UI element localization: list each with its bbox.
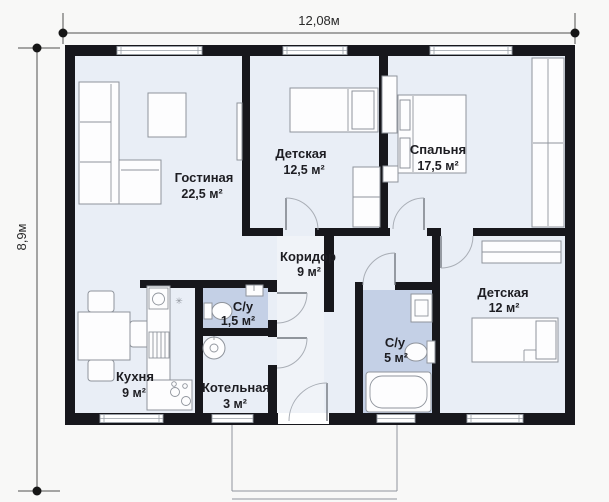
sink <box>246 285 263 296</box>
dimension-marker <box>59 29 68 38</box>
room-area-bath-big: 5 м² <box>384 351 408 365</box>
window-kitchen <box>100 415 163 423</box>
room-label-bath-small: С/у <box>233 299 254 314</box>
window-kids2 <box>467 415 523 423</box>
dimension-marker <box>33 487 42 496</box>
wardrobe-left <box>382 76 397 133</box>
toilet-tank <box>427 341 435 363</box>
dimension-marker <box>571 29 580 38</box>
room-label-corridor: Коридор <box>280 249 336 264</box>
wall-corridor-c <box>427 228 441 236</box>
room-area-boiler: 3 м² <box>223 397 247 411</box>
sofa <box>79 82 119 204</box>
room-label-living: Гостиная <box>175 170 234 185</box>
wall-corridor-d <box>473 228 565 236</box>
window-boiler <box>212 415 253 423</box>
room-area-corridor: 9 м² <box>297 265 321 279</box>
pillow <box>352 91 374 129</box>
window-bath-big <box>377 415 415 423</box>
pillow <box>536 321 556 359</box>
floor-plan: ✳ <box>0 0 609 502</box>
wall-corridor-a <box>242 228 283 236</box>
window-bedroom <box>430 47 512 55</box>
room-label-boiler: Котельная <box>202 380 270 395</box>
nightstand <box>383 166 398 182</box>
room-area-bedroom: 17,5 м² <box>417 159 458 173</box>
room-label-kids2: Детская <box>477 285 528 300</box>
wall-living-kids1 <box>242 56 250 236</box>
vent-symbol: ✳ <box>175 296 183 306</box>
tv-unit <box>237 103 242 160</box>
wall-bath-small-bottom <box>195 328 277 336</box>
room-area-kids2: 12 м² <box>489 301 520 315</box>
wall-hall-left-a <box>268 280 277 292</box>
room-label-kids1: Детская <box>275 146 326 161</box>
dimension-height-label: 8,9м <box>14 223 29 250</box>
room-area-bath-small: 1,5 м² <box>221 314 255 328</box>
room-label-kitchen: Кухня <box>116 369 154 384</box>
wall-bath-big-top <box>395 282 432 290</box>
room-area-kids1: 12,5 м² <box>283 163 324 177</box>
wall-kids2-left <box>432 236 440 413</box>
dimension-top: 12,08м <box>59 13 580 44</box>
chair <box>88 291 114 312</box>
kitchen-counter <box>147 286 170 380</box>
floor-plan-canvas: ✳ <box>0 0 609 502</box>
dining-table <box>78 312 130 360</box>
pillow <box>400 138 410 168</box>
dimension-left: 8,9м <box>14 44 60 496</box>
porch-outline <box>232 425 397 499</box>
entrance-gap <box>278 413 329 424</box>
wall-bath-big-left <box>355 282 363 413</box>
room-area-living: 22,5 м² <box>181 187 222 201</box>
dimension-marker <box>33 44 42 53</box>
room-label-bath-big: С/у <box>385 335 406 350</box>
room-label-bedroom: Спальня <box>410 142 466 157</box>
window-kids1 <box>283 47 347 55</box>
dimension-width-label: 12,08м <box>298 13 340 28</box>
wall-hall-left-b <box>268 320 277 337</box>
coffee-table <box>148 93 186 137</box>
toilet-bowl <box>405 343 427 361</box>
chair <box>88 360 114 381</box>
toilet-tank <box>204 303 212 319</box>
room-area-kitchen: 9 м² <box>122 386 146 400</box>
sofa-chaise <box>119 160 161 204</box>
pillow <box>400 100 410 130</box>
wall-corridor-b <box>315 228 390 236</box>
sink <box>411 294 432 322</box>
wall-hall-right-stub <box>324 236 334 312</box>
boiler <box>203 337 225 359</box>
window-living <box>117 47 202 55</box>
